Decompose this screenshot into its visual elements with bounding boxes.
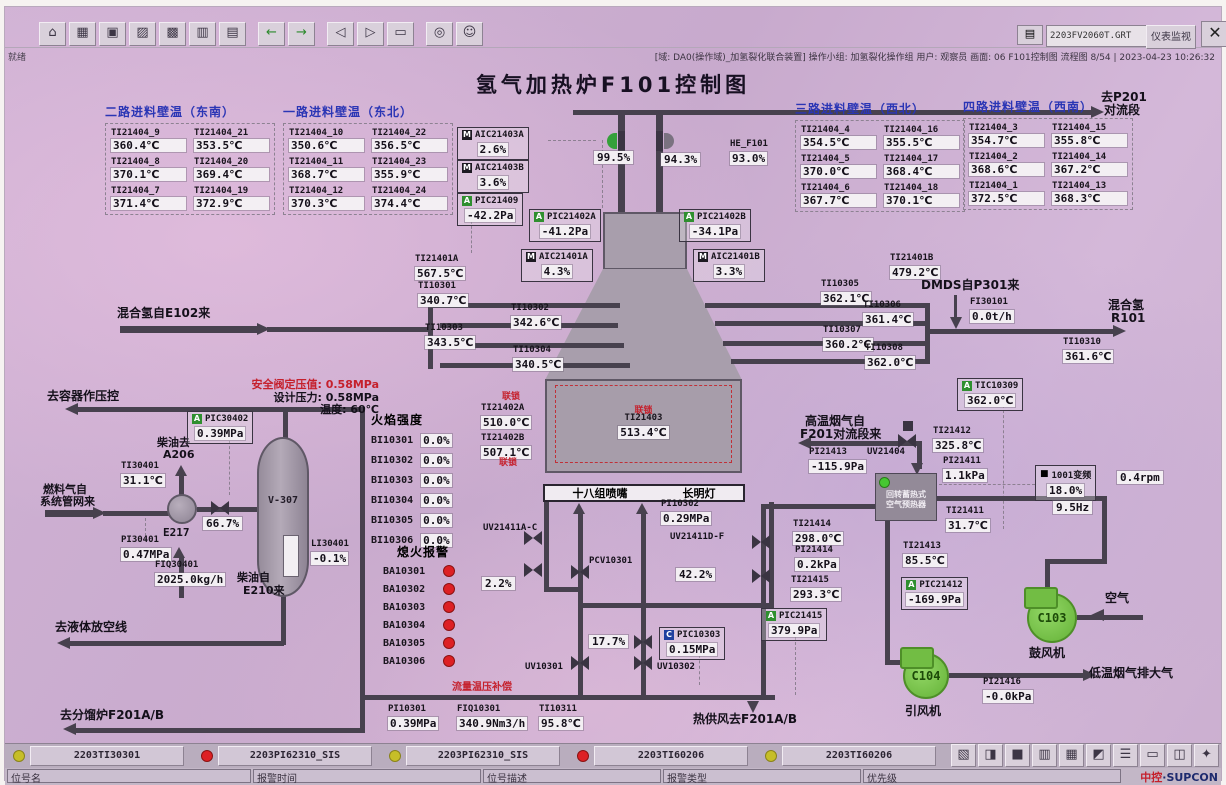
wall-temp: TI21404_14367.2℃ [1052, 152, 1127, 176]
uv21411ac-label: UV21411A-C [483, 524, 537, 534]
valve-output: 66.7% [203, 517, 242, 530]
arrowhead [65, 403, 78, 415]
vessel-drain-pipe [281, 595, 286, 645]
arrowhead [1091, 609, 1104, 621]
mode-badge: M [698, 252, 708, 262]
tag-PI21411: PI214111.1kPa [943, 456, 987, 483]
mode-badge: M [462, 163, 472, 173]
alarm-dot [443, 637, 455, 649]
alarm-entry: 2203TI60206 [765, 746, 936, 766]
damper-a-output: 99.5% [594, 151, 633, 164]
wall-temp: TI21404_1372.5℃ [969, 181, 1044, 205]
wall-temp: TI21404_11368.7℃ [289, 157, 364, 181]
calendar-icon[interactable]: ▦ [1059, 744, 1084, 767]
window-icon[interactable]: ◫ [1167, 744, 1192, 767]
controller-PIC10303[interactable]: CPIC10303 0.15MPa [659, 627, 725, 660]
screen-icon[interactable]: ▣ [99, 22, 126, 46]
air-pipe [1045, 559, 1107, 564]
burner-bar: 十八组喷嘴 长明灯 [543, 484, 745, 502]
arrowhead [573, 503, 585, 514]
status-bar: 就绪 [域: DA0(操作域)_加氢裂化联合装置] 操作小组: 加氢裂化操作组 … [5, 47, 1221, 63]
wall-temp: TI21404_15355.8℃ [1052, 123, 1127, 147]
diesel-from-label: 柴油自 [237, 572, 270, 584]
interlock-label: 联锁 [499, 459, 517, 469]
alarm-tag-button[interactable]: 2203TI60206 [594, 746, 748, 766]
uv10302-label: UV10302 [657, 663, 695, 673]
alarm-dot [443, 655, 455, 667]
psv-note: 安全阀定压值: 0.58MPa [227, 379, 379, 392]
uv21404-valve[interactable] [898, 434, 916, 448]
tag-TI10311: TI1031195.8℃ [539, 704, 583, 731]
flame-row: BI103040.0% [371, 493, 452, 507]
flameout-alarm-list: 熄火报警 BA10301 BA10302 BA10303 BA10304 BA1… [383, 543, 455, 673]
induced-fan-c104[interactable]: C104 [903, 653, 949, 699]
controller-AIC21401B[interactable]: MAIC21401B 3.3% [693, 249, 765, 282]
field-tagname: 位号名 [7, 769, 251, 783]
hot-air-pipe [763, 504, 877, 509]
flameout-row: BA10304 [383, 619, 455, 631]
alarm-tag-button[interactable]: 2203PI62310_SIS [406, 746, 560, 766]
wall-temp: TI21404_23355.9℃ [372, 157, 447, 181]
alarm-entry: 2203TI60206 [577, 746, 748, 766]
flameout-row: BA10303 [383, 601, 455, 613]
controller-AIC21401A[interactable]: MAIC21401A 4.3% [521, 249, 593, 282]
flame-row: BI103050.0% [371, 513, 452, 527]
tag-TI30401: TI3040131.1℃ [121, 461, 165, 488]
uv21404-label: UV21404 [867, 448, 905, 458]
tag-TI10304: TI10304340.5℃ [513, 345, 563, 372]
wall-temp: TI21404_22356.5℃ [372, 128, 447, 152]
wall-temp: TI21404_16355.5℃ [884, 125, 959, 149]
r101-label: R101 [1111, 312, 1145, 325]
arrowhead [636, 503, 648, 514]
signal-dash [795, 637, 796, 695]
signal-dash [939, 484, 1035, 485]
hot-flue-label2: F201对流段来 [800, 428, 881, 441]
wall-temp-group-2: 二路进料壁温（东南） TI21404_9360.4℃ TI21404_21353… [105, 103, 275, 215]
mode-badge: A [192, 414, 202, 424]
to-f201-label: 去分馏炉F201A/B [60, 709, 164, 722]
hot-air-pipe [761, 504, 766, 697]
tag-PI21413: PI21413-115.9Pa [809, 447, 866, 474]
fuel-valve[interactable] [752, 569, 770, 583]
flameout-row: BA10301 [383, 565, 455, 577]
group-title: 二路进料壁温（东南） [105, 103, 275, 120]
mode-badge: A [766, 611, 776, 621]
vent-pipe [69, 641, 284, 646]
back-icon[interactable]: ← [258, 22, 285, 46]
alarm-entry: 2203PI62310_SIS [201, 746, 372, 766]
wall-temp: TI21404_21353.5℃ [194, 128, 269, 152]
flame-row: BI103020.0% [371, 453, 452, 467]
damper-stem [656, 131, 663, 151]
mode-badge: C [664, 630, 674, 640]
session-info: [域: DA0(操作域)_加氢裂化联合装置] 操作小组: 加氢裂化操作组 用户:… [655, 50, 1215, 63]
fuel-control-valve[interactable] [211, 501, 229, 515]
signal-dash [548, 140, 596, 141]
blower-name-label: 鼓风机 [1029, 647, 1065, 660]
tag-FI30101: FI301010.0t/h [970, 297, 1014, 324]
tag-TI21411: TI2141131.7℃ [946, 506, 990, 533]
factory-icon[interactable]: ▨ [129, 22, 156, 46]
stack-damper-b[interactable] [664, 133, 674, 149]
pcv10301-label: PCV10301 [589, 557, 632, 567]
mode-badge: A [462, 196, 472, 206]
level-gauge [283, 535, 299, 577]
arrowhead [173, 547, 185, 558]
flue-down-pipe [885, 520, 890, 665]
hot-air-to-f201-label: 热供风去F201A/B [693, 713, 797, 726]
mode-badge: A [684, 212, 694, 222]
book-icon[interactable]: ▭ [387, 22, 414, 46]
valve-output: 2.2% [482, 577, 515, 590]
scada-window: ⌂ ▦ ▣ ▨ ▩ ▥ ▤ ← → ◁ ▷ ▭ ◎ ☺ ▤ 仪表监视 ▾ ✕ 就… [0, 0, 1226, 785]
tag-PI10302: PI103020.29MPa [661, 499, 711, 526]
field-alarmtime: 报警时间 [253, 769, 481, 783]
fan-name-label: 引风机 [905, 705, 941, 718]
uv10301-label: UV10301 [525, 663, 563, 673]
report-icon[interactable]: ▤ [219, 22, 246, 46]
tag-FIQ10301: FIQ10301340.9Nm3/h [457, 704, 527, 731]
alarm-field-bar: 位号名 报警时间 位号描述 报警类型 优先级 [5, 768, 1221, 785]
valve-output: 42.2% [676, 568, 715, 581]
damper-b-output: 94.3% [661, 153, 700, 166]
tag-LI30401: LI30401-0.1% [311, 539, 349, 566]
report-icon[interactable]: ▭ [1140, 744, 1165, 767]
field-priority: 优先级 [863, 769, 1121, 783]
to-vessel-pc-label: 去容器作压控 [47, 390, 119, 403]
arrowhead [57, 637, 70, 649]
preheater-label2: 空气预热器 [886, 500, 926, 509]
bottom-icon-bar: ▧ ◨ ■ ▥ ▦ ◩ ☰ ▭ ◫ ✦ [951, 744, 1219, 767]
field-alarmtype: 报警类型 [663, 769, 861, 783]
flameout-row: BA10305 [383, 637, 455, 649]
mode-badge: A [534, 212, 544, 222]
status-ready: 就绪 [8, 50, 26, 63]
alarm-dot [443, 619, 455, 631]
run-status-dot [879, 477, 890, 488]
home-icon[interactable]: ⌂ [39, 22, 66, 46]
controller-AIC21403A[interactable]: MAIC21403A 2.6% [457, 127, 529, 160]
list-icon[interactable]: ☰ [1113, 744, 1138, 767]
tag-TI10308: TI10308362.0℃ [865, 343, 915, 370]
fuel-gas-pipe [103, 511, 169, 516]
monitor-mode-button[interactable]: 仪表监视 [1146, 25, 1196, 49]
tag-HE_F101: HE_F10193.0% [730, 139, 768, 166]
to-vent-label: 去液体放空线 [55, 621, 127, 634]
flame-title: 火焰强度 [371, 411, 452, 428]
feed-from-e102-label: 混合氢自E102来 [117, 307, 210, 320]
controller-PIC21412[interactable]: APIC21412 -169.9Pa [901, 577, 968, 610]
connect-pipe [578, 603, 774, 608]
toolbar: ⌂ ▦ ▣ ▨ ▩ ▥ ▤ ← → ◁ ▷ ▭ ◎ ☺ [39, 21, 483, 47]
wall-temp: TI21404_12370.3℃ [289, 186, 364, 210]
cold-flue-label: 低温烟气排大气 [1089, 667, 1173, 680]
supcon-logo: 中控·SUPCON [1140, 769, 1218, 785]
tag-TI21401B: TI21401B479.2℃ [890, 253, 940, 280]
controller-PIC30402[interactable]: APIC30402 0.39MPa [187, 411, 253, 444]
forward-icon[interactable]: → [288, 22, 315, 46]
snapshot-icon[interactable]: ▧ [951, 744, 976, 767]
fuel-header-pipe [362, 695, 775, 700]
group-icon[interactable]: ▩ [159, 22, 186, 46]
pilot-pipe [769, 502, 774, 608]
uv21411df-valve[interactable] [752, 535, 770, 549]
wall-temp: TI21404_2368.6℃ [969, 152, 1044, 176]
fuel-gas-pipe [45, 510, 93, 517]
wall-temp: TI21404_9360.4℃ [111, 128, 186, 152]
alarm-entry: 2203PI62310_SIS [389, 746, 560, 766]
pic10303-valve[interactable] [634, 635, 652, 649]
fuel-valve[interactable] [524, 563, 542, 577]
tag-PI30401: PI304010.47MPa [121, 535, 171, 562]
wall-temp: TI21404_3354.7℃ [969, 123, 1044, 147]
burners-label: 十八组喷嘴 [573, 485, 628, 501]
page-prev-icon[interactable]: ◁ [327, 22, 354, 46]
uv10302-valve[interactable] [634, 656, 652, 670]
tag-TI10310: TI10310361.6℃ [1063, 337, 1113, 364]
feed-pipe [120, 326, 260, 333]
user-icon[interactable]: ☺ [456, 22, 483, 46]
controller-PIC21402B[interactable]: APIC21402B -34.1Pa [679, 209, 751, 242]
motor-icon: ■ [1040, 470, 1049, 479]
motor-hz-output: 9.5Hz [1053, 501, 1092, 514]
field-description: 位号描述 [483, 769, 661, 783]
flame-strength-list: 火焰强度 BI103010.0% BI103020.0% BI103030.0%… [371, 411, 452, 553]
alarm-tag-button[interactable]: 2203TI60206 [782, 746, 936, 766]
controller-PIC21409[interactable]: APIC21409 -42.2Pa [457, 193, 523, 226]
wall-temp: TI21404_20369.4℃ [194, 157, 269, 181]
search-icon[interactable]: ◎ [426, 22, 453, 46]
damper-stem [618, 131, 625, 151]
controller-TIC10309[interactable]: ATIC10309 362.0℃ [957, 378, 1023, 411]
mixer-e217[interactable] [167, 494, 197, 524]
wall-temp: TI21404_4354.5℃ [801, 125, 876, 149]
fuel-riser-pipe [360, 407, 365, 733]
arrowhead [257, 323, 270, 335]
alarm-dot [443, 565, 455, 577]
tag-PI21416: PI21416-0.0kPa [983, 677, 1033, 704]
uv10301-valve[interactable] [571, 656, 589, 670]
interlock-label: 联锁 [502, 393, 520, 403]
picture-file-field[interactable] [1046, 25, 1150, 47]
alarm-priority-dot [389, 750, 401, 762]
tag-TI10301: TI10301340.7℃ [418, 281, 468, 308]
signal-dash [471, 221, 472, 253]
alarm-tag-button[interactable]: 2203TI30301 [30, 746, 184, 766]
air-pipe [1102, 496, 1107, 564]
dmds-label: DMDS自P301来 [921, 279, 1019, 292]
tag-TI21402A: TI21402A510.0℃ [481, 403, 531, 430]
wall-temp: TI21404_8370.1℃ [111, 157, 186, 181]
overview-icon[interactable]: ▦ [69, 22, 96, 46]
wall-temp: TI21404_18370.1℃ [884, 183, 959, 207]
mode-badge: A [906, 580, 916, 590]
alarm-entry: 2203TI30301 [13, 746, 184, 766]
tag-TI21412: TI21412325.8℃ [933, 426, 983, 453]
tag-TI21415: TI21415293.3℃ [791, 575, 841, 602]
tag-TI21403: TI21403513.4℃ [547, 413, 740, 440]
lock-icon[interactable]: ◨ [978, 744, 1003, 767]
tag-TI21401A: TI21401A567.5℃ [415, 254, 465, 281]
help-icon[interactable]: ✦ [1194, 744, 1219, 767]
to-p201-label2: 对流段 [1104, 104, 1140, 117]
arrowhead [93, 507, 106, 519]
print-icon[interactable]: ▤ [1017, 25, 1043, 45]
group-title: 一路进料壁温（东北） [283, 103, 453, 120]
scada-screen: ⌂ ▦ ▣ ▨ ▩ ▥ ▤ ← → ◁ ▷ ▭ ◎ ☺ ▤ 仪表监视 ▾ ✕ 就… [4, 6, 1222, 781]
air-label: 空气 [1105, 592, 1129, 605]
mode-badge: M [526, 252, 536, 262]
tag-TI21413: TI2141385.5℃ [903, 541, 947, 568]
flame-row: BI103010.0% [371, 433, 452, 447]
wall-temp-group-1: 一路进料壁温（东北） TI21404_10350.6℃ TI21404_2235… [283, 103, 453, 215]
air-inlet-pipe [1077, 615, 1143, 620]
valve-output: 17.7% [589, 635, 628, 648]
page-next-icon[interactable]: ▷ [357, 22, 384, 46]
group-title: 三路进料壁温（西北） [795, 100, 965, 117]
uv21411df-label: UV21411D-F [670, 533, 724, 543]
wall-temp: TI21404_6367.7℃ [801, 183, 876, 207]
outlet-pipe [925, 329, 1117, 334]
mode-badge: M [462, 130, 472, 140]
feed-pipe [267, 327, 432, 332]
blower-c103[interactable]: C103 [1027, 593, 1077, 643]
furnace-transition [603, 212, 687, 270]
page-title: 氢气加热炉F101控制图 [5, 69, 1221, 99]
controller-AIC21403B[interactable]: MAIC21403B 3.6% [457, 160, 529, 193]
motor-rpm-output: 0.4rpm [1117, 471, 1163, 484]
tag-TI10303: TI10303343.5℃ [425, 323, 475, 350]
alarm-priority-dot [577, 750, 589, 762]
arrowhead [175, 465, 187, 476]
arrowhead [950, 317, 962, 329]
alarm-dot [443, 583, 455, 595]
wall-temp: TI21404_7371.4℃ [111, 186, 186, 210]
diesel-to-a206-label: A206 [163, 449, 194, 461]
close-icon[interactable]: ✕ [1201, 21, 1226, 47]
wall-temp: TI21404_13368.3℃ [1052, 181, 1127, 205]
wall-temp: TI21404_24374.4℃ [372, 186, 447, 210]
flow-compensation-label: 流量温压补偿 [452, 682, 512, 693]
tag-TI10306: TI10306361.4℃ [863, 300, 913, 327]
branch-pipe [544, 587, 580, 592]
alarm-icon[interactable]: ◩ [1086, 744, 1111, 767]
wall-temp: TI21404_5370.0℃ [801, 154, 876, 178]
tag-TI21402B: TI21402B507.1℃ [481, 433, 531, 460]
to-f201-pipe [75, 728, 365, 733]
pcv10301-valve[interactable] [571, 565, 589, 579]
alarm-tag-button[interactable]: 2203PI62310_SIS [218, 746, 372, 766]
signal-dash [229, 441, 230, 495]
tag-TI10302: TI10302342.6℃ [511, 303, 561, 330]
alarm-priority-dot [201, 750, 213, 762]
flameout-row: BA10306 [383, 655, 455, 667]
wall-temp: TI21404_19372.9℃ [194, 186, 269, 210]
mode-badge: A [962, 381, 972, 391]
tag-TI21414: TI21414298.0℃ [793, 519, 843, 546]
arrowhead [1113, 325, 1126, 337]
preheater-label: 回转蓄热式 [886, 490, 926, 499]
tag-FIQ30401: FIQ304012025.0kg/h [155, 560, 225, 587]
tag-PI21414: PI214140.2kPa [795, 545, 839, 572]
valve-actuator [903, 421, 913, 431]
print-icon[interactable]: ▥ [1032, 744, 1057, 767]
fuel-gas-label2: 系统管网来 [40, 496, 95, 508]
wall-temp: TI21404_10350.6℃ [289, 128, 364, 152]
alarm-priority-dot [13, 750, 25, 762]
alarm-priority-dot [765, 750, 777, 762]
flameout-row: BA10302 [383, 583, 455, 595]
controller-PIC21415[interactable]: APIC21415 379.9Pa [761, 608, 827, 641]
screen-icon[interactable]: ■ [1005, 744, 1030, 767]
stack-damper-a[interactable] [607, 133, 617, 149]
motor-1001-box[interactable]: ■1001变频 18.0% [1035, 465, 1096, 501]
arrowhead [63, 723, 76, 735]
wall-temp: TI21404_17368.4℃ [884, 154, 959, 178]
controller-PIC21402A[interactable]: APIC21402A -41.2Pa [529, 209, 601, 242]
trend-icon[interactable]: ▥ [189, 22, 216, 46]
signal-dash [1003, 405, 1004, 529]
alarm-dot [443, 601, 455, 613]
branch-pipe [544, 502, 549, 592]
diesel-from-e210-label: E210来 [243, 585, 284, 597]
flameout-title: 熄火报警 [383, 543, 455, 560]
flame-row: BI103030.0% [371, 473, 452, 487]
furnace-firebox[interactable]: 联锁 TI21403513.4℃ [545, 379, 742, 473]
tag-PI10301: PI103010.39MPa [388, 704, 438, 731]
wall-temp-group-3: 三路进料壁温（西北） TI21404_4354.5℃ TI21404_16355… [795, 100, 965, 212]
